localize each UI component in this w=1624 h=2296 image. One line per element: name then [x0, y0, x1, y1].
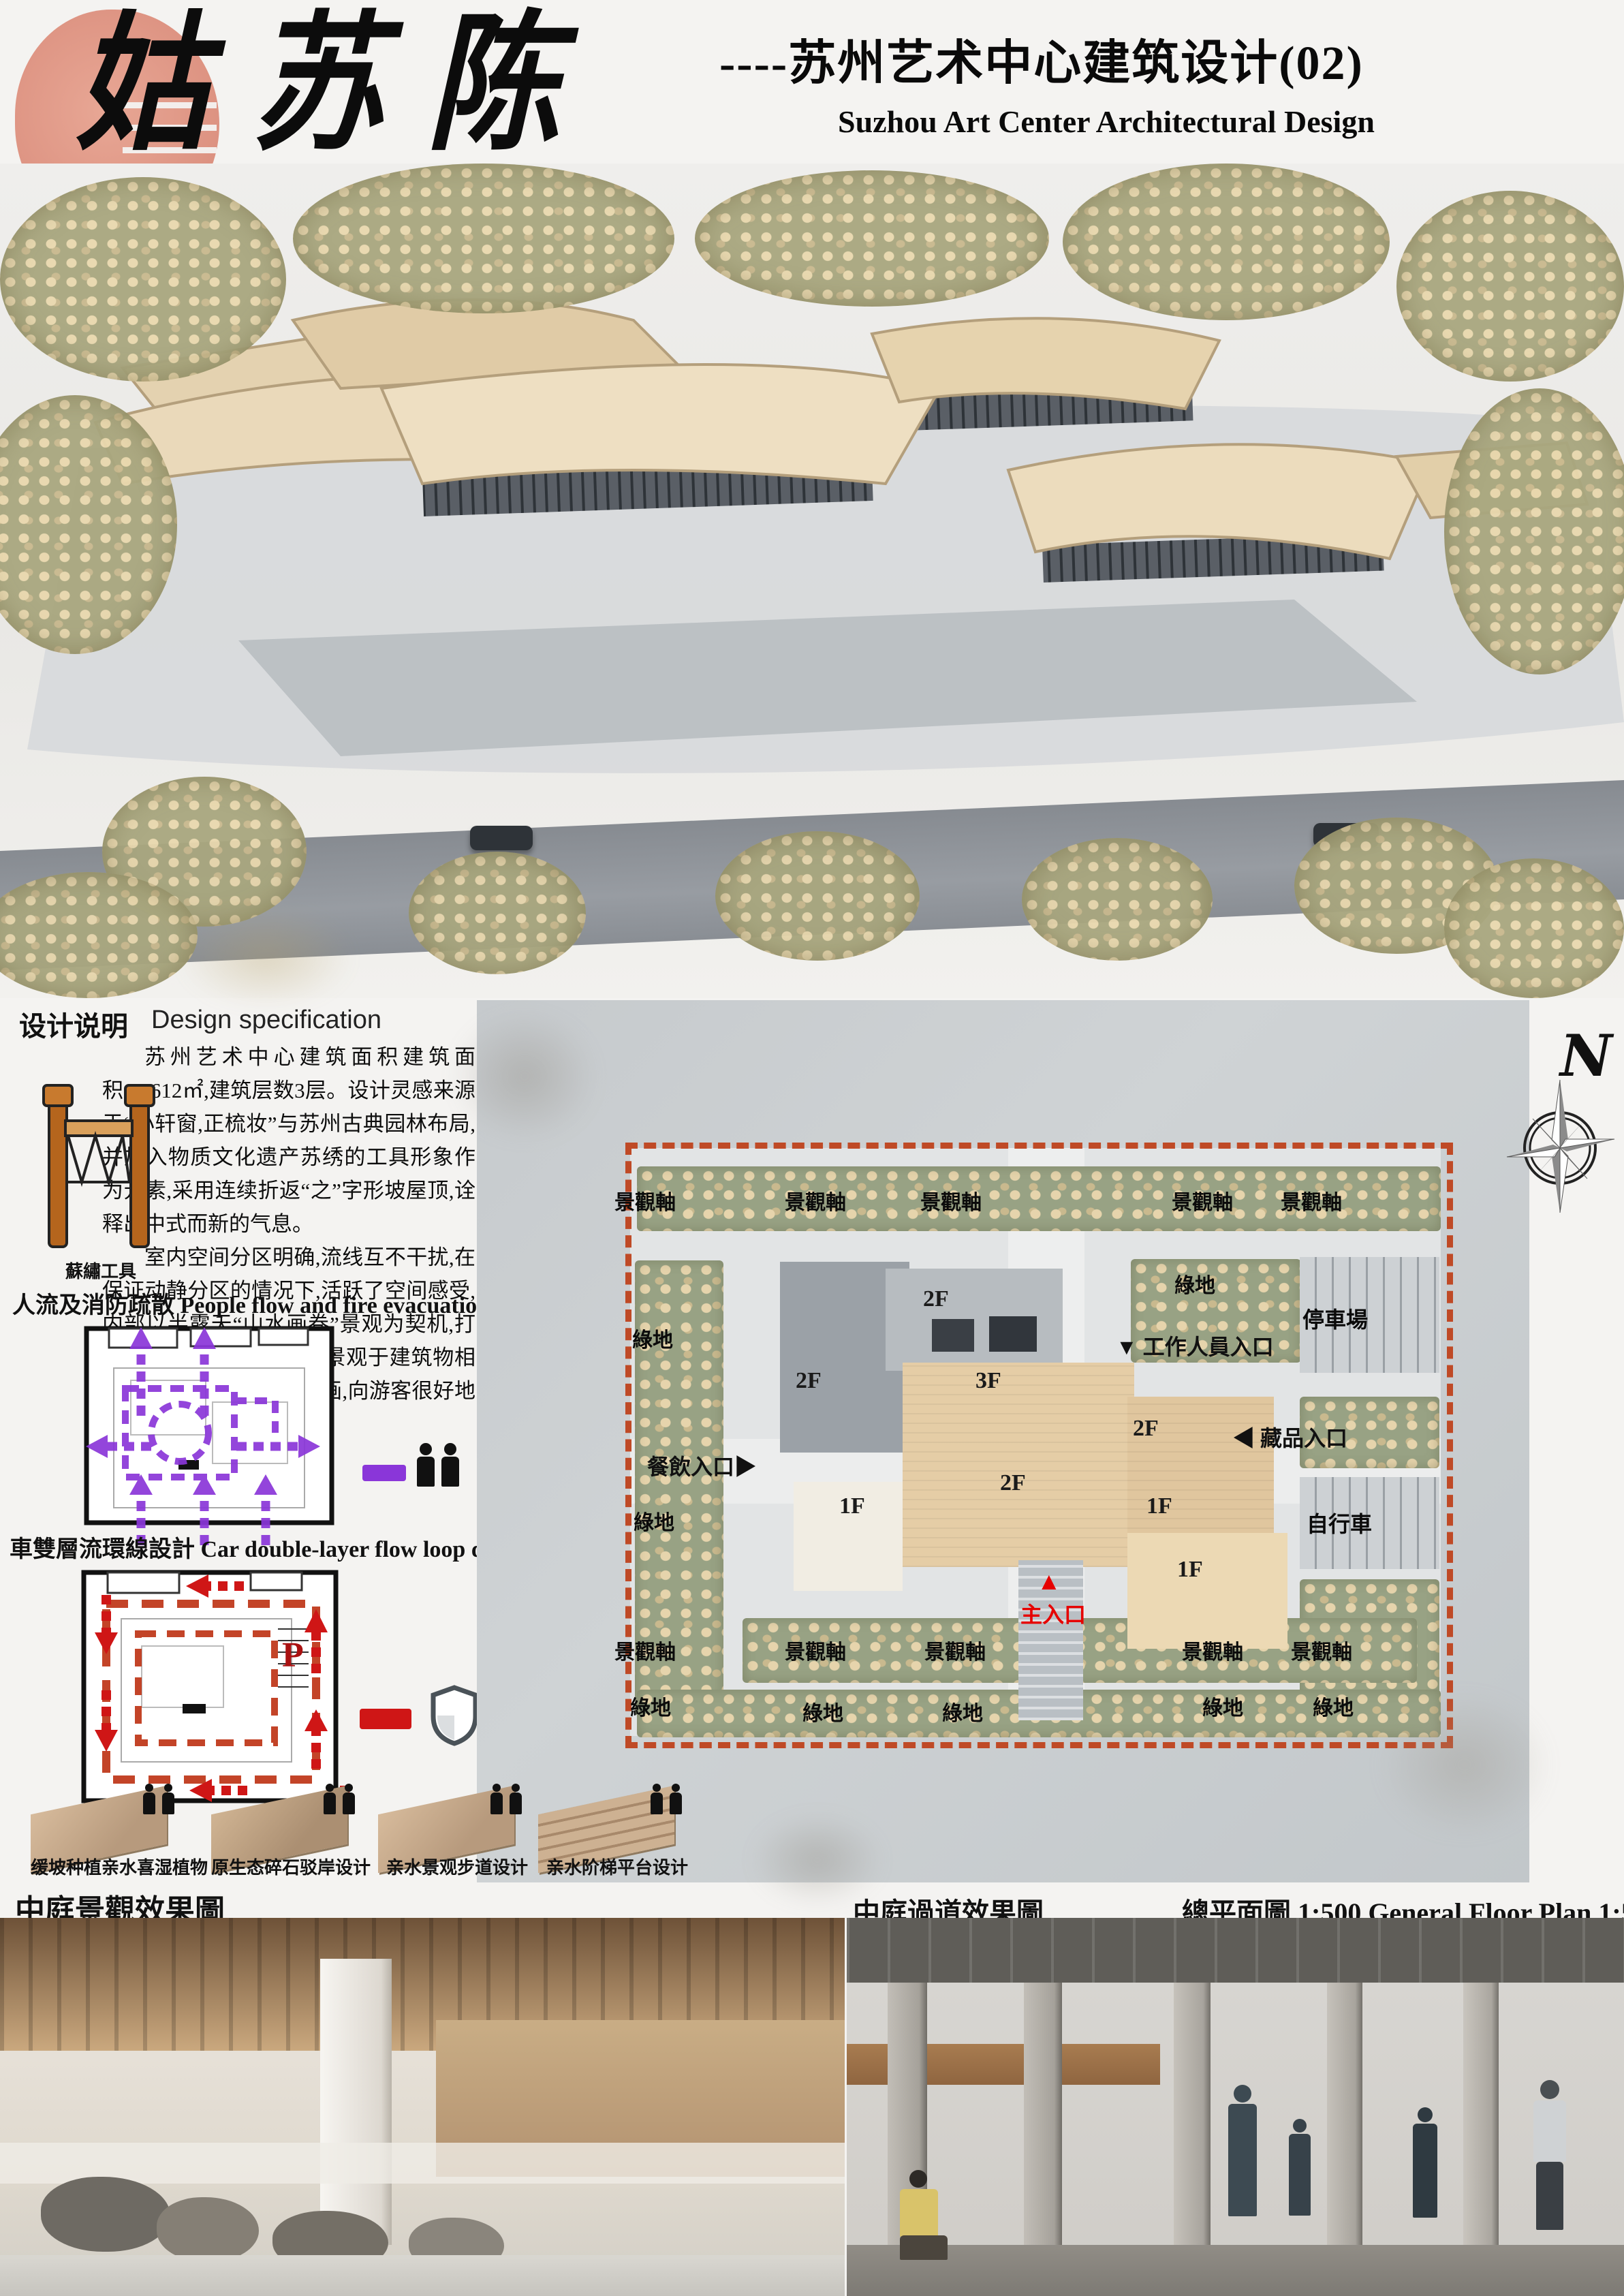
person-silhouette [1418, 2107, 1433, 2122]
car [470, 826, 533, 850]
eco-section-1: 缓坡种植亲水喜湿植物 [31, 1784, 189, 1879]
green-space-label: 綠地 [802, 1696, 843, 1726]
landscape-axis-label: 景觀軸 [1172, 1185, 1233, 1215]
bicycle-label: 自行車 [1307, 1507, 1372, 1538]
tree-grove [1063, 164, 1390, 320]
design-spec-heading-en: Design specification [151, 1006, 381, 1035]
embroidery-tool-label: 蘇繡工具 [65, 1258, 136, 1283]
seated-person [900, 2235, 948, 2260]
person-icon [490, 1793, 503, 1814]
person-icon [441, 1457, 459, 1487]
person-icon [145, 1784, 153, 1792]
ink-splatter [450, 1008, 599, 1145]
staff-entrance-label: ▼ 工作人員入口 [1116, 1330, 1274, 1361]
green-space-label: 綠地 [942, 1696, 983, 1726]
person-silhouette [1536, 2162, 1563, 2230]
floor-label-2f: 2F [1133, 1416, 1159, 1442]
eco-label: 亲水阶梯平台设计 [538, 1854, 696, 1879]
rock [157, 2197, 259, 2262]
landscape-axis-label: 景觀軸 [1291, 1635, 1352, 1665]
ink-splatter [1376, 1690, 1553, 1840]
floor-label-2f: 2F [796, 1368, 822, 1394]
person-silhouette [1293, 2119, 1307, 2132]
person-icon [162, 1793, 174, 1814]
floor-label-1f: 1F [1146, 1493, 1172, 1519]
floor-label-2f: 2F [1000, 1470, 1026, 1496]
column [1463, 1983, 1499, 2245]
person-icon [653, 1784, 661, 1792]
person-icon [326, 1784, 334, 1792]
landscape-axis-label: 景觀軸 [924, 1635, 986, 1665]
main-entrance-arrow: ▲ [1037, 1567, 1061, 1596]
tree-grove [1444, 388, 1624, 674]
dining-entrance-label: 餐飲入口▶ [647, 1450, 756, 1481]
eco-section-2: 原生态碎石驳岸设计 [211, 1784, 369, 1879]
landscape-axis-label: 景觀軸 [920, 1185, 982, 1215]
car-heading-cn: 車雙層流環線設計 [10, 1537, 195, 1562]
green-space-label: 綠地 [632, 1323, 673, 1353]
tree-grove [695, 170, 1049, 307]
person-silhouette [1533, 2100, 1566, 2162]
landscape-axis-label: 景觀軸 [1182, 1635, 1243, 1665]
eco-section-3: 亲水景观步道设计 [378, 1784, 536, 1879]
main-entrance-label: 主入口 [1020, 1598, 1086, 1629]
floor [847, 2245, 1624, 2296]
person-icon [343, 1793, 355, 1814]
person-icon [670, 1793, 682, 1814]
person-silhouette [1228, 2104, 1257, 2216]
person-silhouette [1540, 2080, 1559, 2099]
column [1174, 1983, 1211, 2245]
pond [0, 2255, 845, 2296]
person-silhouette [1413, 2124, 1437, 2218]
eco-label: 原生态碎石驳岸设计 [211, 1854, 369, 1879]
ink-splatter [749, 1812, 886, 1908]
flow-heading-cn: 人流及消防疏散 [12, 1293, 174, 1318]
tree-grove [715, 831, 920, 961]
person-icon [345, 1784, 353, 1792]
flow-diagram-heading: 人流及消防疏散 People flow and fire evacuation [12, 1286, 490, 1320]
compass-rose-icon [1507, 1076, 1616, 1213]
poster-board: 姑苏陈情 ----苏州艺术中心建筑设计(02) Suzhou Art Cente… [0, 0, 1624, 2296]
person-icon [164, 1784, 172, 1792]
collection-entrance-label: ◀ 藏品入口 [1233, 1421, 1347, 1453]
tree-grove [293, 164, 674, 313]
corridor-photo [847, 1918, 1624, 2296]
car-flow-diagram: P [74, 1564, 349, 1820]
shield-icon [428, 1684, 481, 1747]
eco-label: 亲水景观步道设计 [378, 1854, 536, 1879]
seated-person [900, 2189, 938, 2237]
flow-heading-en: People flow and fire evacuation [181, 1293, 490, 1318]
people-flow-diagram [76, 1320, 345, 1545]
person-icon [143, 1793, 155, 1814]
parking-lot-label: 停車場 [1302, 1303, 1368, 1334]
design-spec-heading-cn: 设计说明 [19, 1004, 128, 1044]
landscape-axis-label: 景觀軸 [614, 1635, 676, 1665]
person-icon [420, 1443, 432, 1455]
ink-splatter [177, 906, 354, 1008]
landscape-axis-label: 景觀軸 [1281, 1185, 1342, 1215]
person-silhouette [1234, 2085, 1251, 2103]
white-column [320, 1959, 392, 2245]
floor-label-1f: 1F [839, 1493, 865, 1519]
person-icon [324, 1793, 336, 1814]
tree-grove [0, 177, 286, 382]
car-flow-legend-bar [360, 1709, 411, 1729]
courtyard-photo [0, 1918, 845, 2296]
column [1024, 1983, 1062, 2245]
green-space-label: 綠地 [634, 1506, 674, 1536]
green-space-label: 綠地 [1202, 1691, 1243, 1721]
floor-label-3f: 3F [975, 1368, 1001, 1394]
person-icon [512, 1784, 520, 1792]
floor-label-1f: 1F [1177, 1557, 1203, 1583]
tree-grove [1444, 858, 1624, 998]
green-space-label: 綠地 [1313, 1691, 1354, 1721]
landscape-axis-label: 景觀軸 [785, 1185, 846, 1215]
floor-label-2f: 2F [923, 1286, 949, 1312]
subtitle-english: Suzhou Art Center Architectural Design [838, 104, 1587, 140]
person-icon [444, 1443, 456, 1455]
seated-person [909, 2170, 927, 2188]
person-icon [672, 1784, 680, 1792]
tree-grove [1396, 191, 1624, 382]
subtitle-chinese: ----苏州艺术中心建筑设计(02) [719, 25, 1605, 93]
green-space-label: 綠地 [1174, 1269, 1215, 1299]
person-icon [651, 1793, 663, 1814]
people-flow-legend-bar [362, 1465, 406, 1481]
person-icon [493, 1784, 501, 1792]
eco-label: 缓坡种植亲水喜湿植物 [31, 1854, 189, 1879]
landscape-axis-label: 景觀軸 [614, 1185, 676, 1215]
aerial-rendering [0, 164, 1624, 998]
tree-grove [1022, 838, 1213, 961]
rock [41, 2177, 170, 2252]
column [1327, 1983, 1362, 2245]
car-diagram-heading: 車雙層流環線設計 Car double-layer flow loop desi… [10, 1530, 534, 1564]
light-band [0, 2143, 845, 2184]
tree-grove [409, 852, 586, 974]
person-icon [510, 1793, 522, 1814]
landscape-axis-label: 景觀軸 [785, 1635, 846, 1665]
parking-letter: P [282, 1636, 304, 1675]
green-space-label: 綠地 [630, 1691, 671, 1721]
person-silhouette [1289, 2134, 1311, 2216]
person-icon [417, 1457, 435, 1487]
ceiling-beams [847, 1918, 1624, 1983]
eco-section-4: 亲水阶梯平台设计 [538, 1784, 696, 1879]
embroidery-tool-illustration [34, 1080, 163, 1250]
